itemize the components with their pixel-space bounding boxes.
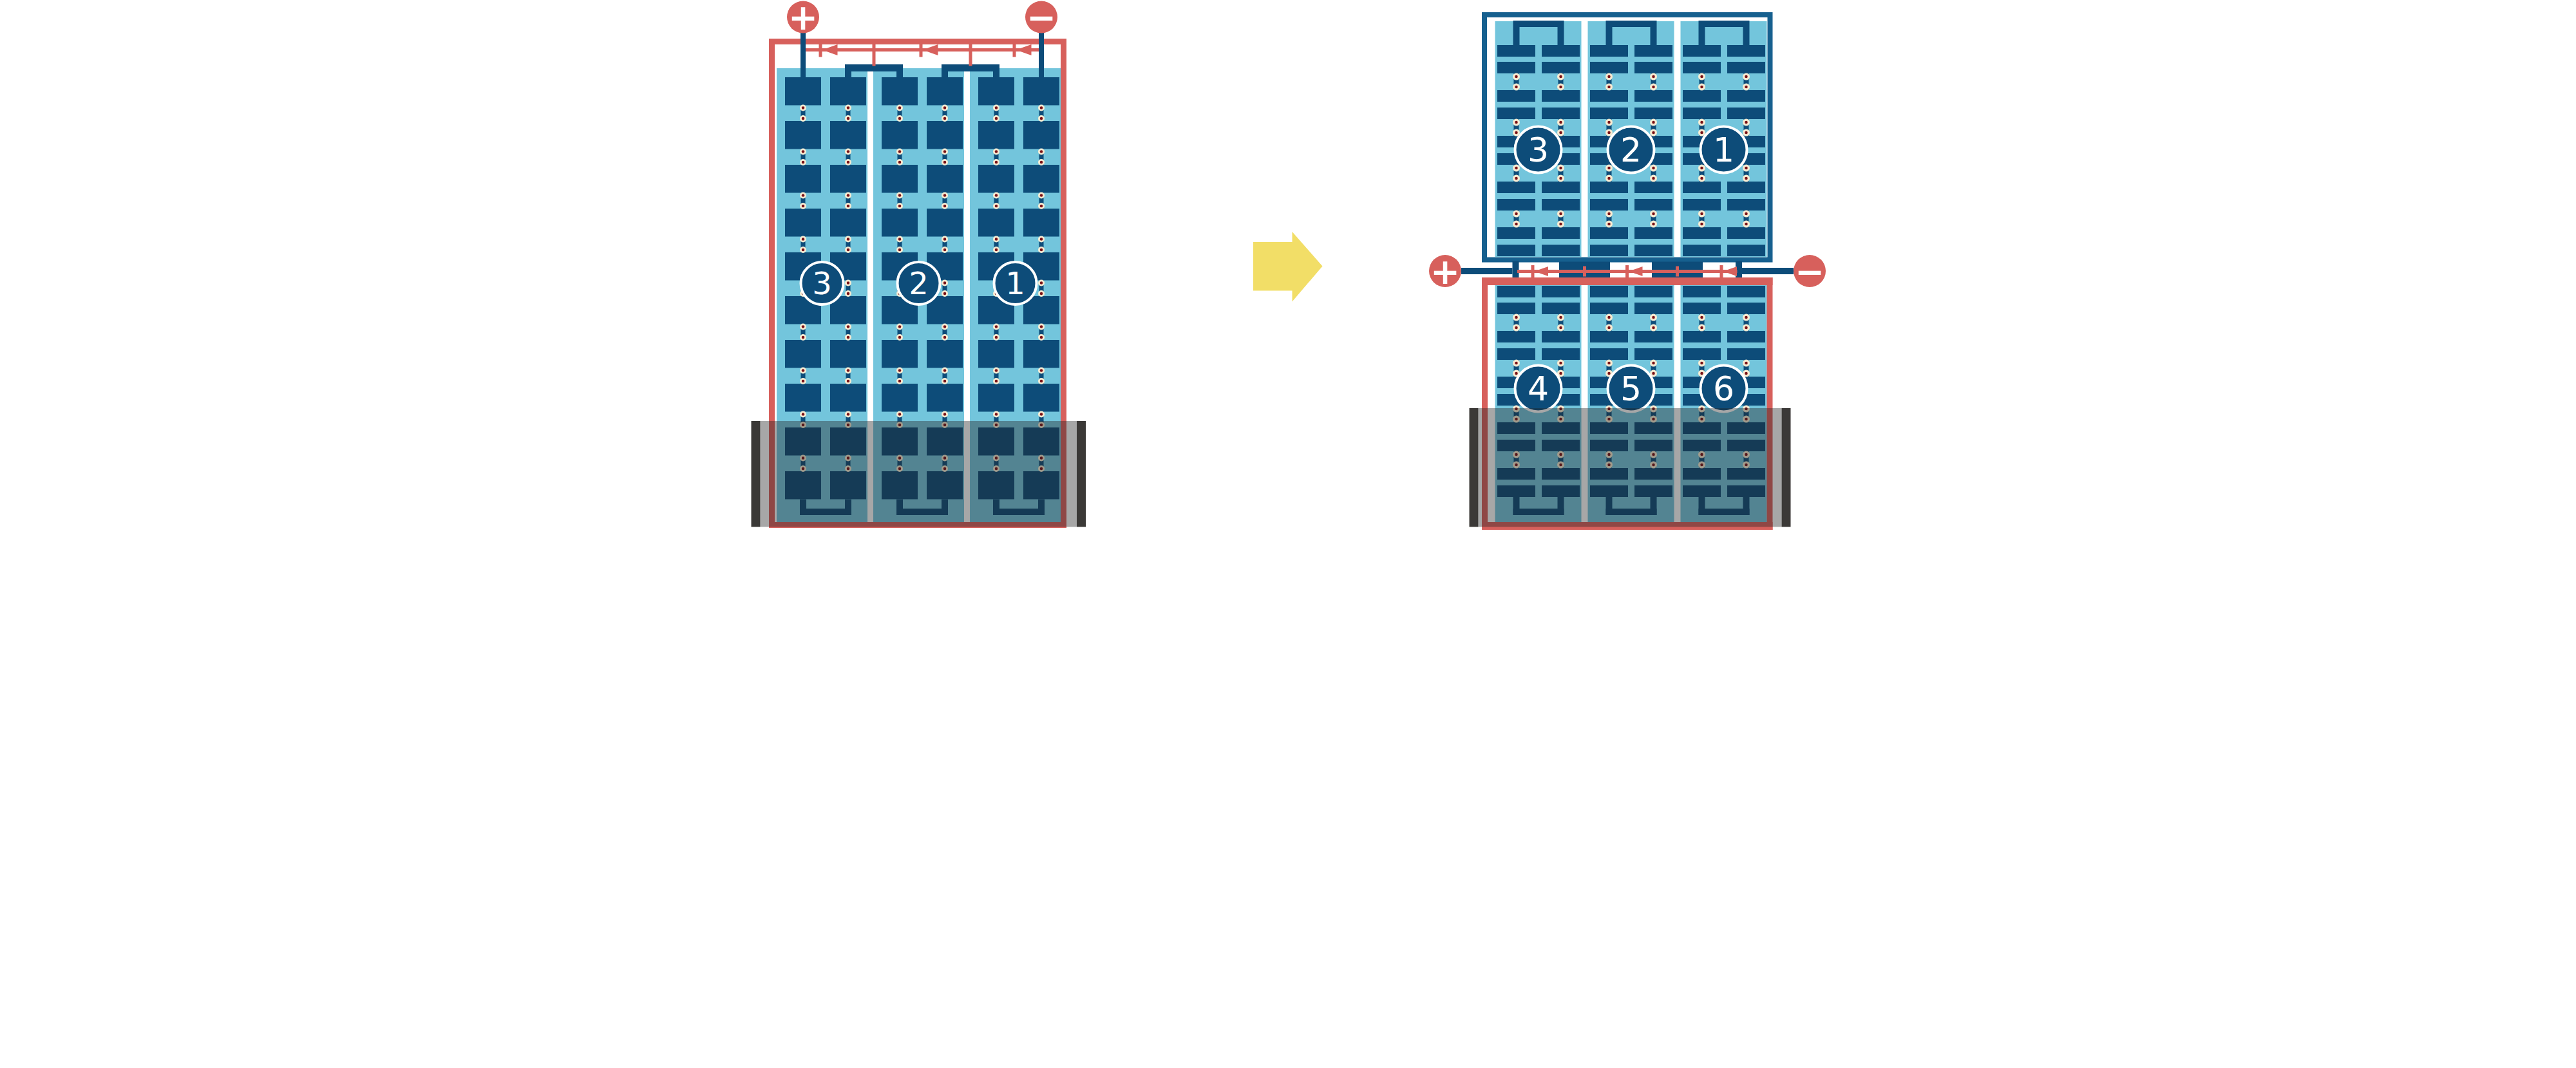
solar-cell <box>1023 121 1059 149</box>
solder-joint-core <box>1040 292 1043 295</box>
solar-cell <box>1023 165 1059 193</box>
solar-cell <box>1023 209 1059 237</box>
string-number-badge: 5 <box>1608 366 1654 412</box>
solder-joint-core <box>943 281 947 285</box>
solder-joint-core <box>1040 117 1043 120</box>
solder-joint-core <box>898 117 902 120</box>
solder-joint-core <box>1607 131 1611 135</box>
transform-arrow <box>1253 232 1323 302</box>
solder-joint-core <box>1515 131 1518 135</box>
solder-joint-core <box>1745 316 1748 319</box>
solder-joint-core <box>995 117 998 120</box>
solder-joint-core <box>995 150 998 153</box>
solder-joint-core <box>802 380 805 383</box>
solder-joint-core <box>1652 121 1655 124</box>
solar-half-cell <box>1590 62 1628 73</box>
string-number: 6 <box>1713 370 1734 408</box>
string-jumper-leg <box>896 71 903 77</box>
solder-joint-core <box>847 194 850 197</box>
solder-joint-core <box>1515 223 1518 226</box>
solar-half-cell <box>1497 303 1535 314</box>
solder-joint-core <box>847 369 850 372</box>
solder-joint-core <box>898 150 902 153</box>
solder-joint-core <box>943 106 947 109</box>
string-jumper-leg <box>942 71 948 77</box>
solar-half-cell <box>1497 227 1535 239</box>
solar-cell <box>978 209 1014 237</box>
solder-joint-core <box>1040 336 1043 339</box>
solder-joint-core <box>898 205 902 208</box>
string-number: 1 <box>1005 265 1025 301</box>
solder-joint-core <box>943 238 947 241</box>
bypass-diode-icon <box>1535 267 1549 276</box>
solder-joint-core <box>1607 316 1611 319</box>
solar-half-cell <box>1590 45 1628 57</box>
solder-joint-core <box>943 413 947 416</box>
solar-half-cell <box>1683 90 1721 102</box>
solder-joint-core <box>847 106 850 109</box>
solder-joint-core <box>943 117 947 120</box>
solar-half-cell <box>1683 227 1721 239</box>
solar-half-cell <box>1683 303 1721 314</box>
solder-joint-core <box>995 194 998 197</box>
solar-half-cell <box>1590 90 1628 102</box>
solder-joint-core <box>802 205 805 208</box>
solder-joint-core <box>1607 177 1611 180</box>
solder-joint-core <box>1700 177 1703 180</box>
solder-joint-core <box>1559 372 1562 375</box>
string-jumper-leg <box>1651 27 1657 45</box>
solar-half-cell <box>1683 182 1721 193</box>
solder-joint-core <box>995 161 998 164</box>
solar-half-cell <box>1634 227 1672 239</box>
solder-joint-core <box>1040 106 1043 109</box>
string-number-badge: 3 <box>801 262 844 304</box>
solder-joint-core <box>1700 167 1703 170</box>
string-jumper-leg <box>1558 27 1564 45</box>
solder-joint-core <box>847 161 850 164</box>
diagram-canvas: +−321 +−321456 <box>644 0 1932 534</box>
string-jumper-leg <box>1699 27 1705 45</box>
solder-joint-core <box>802 238 805 241</box>
solar-cell <box>882 209 918 237</box>
right-module-half-cell-panels: +−321456 <box>1429 15 1826 530</box>
solar-half-cell <box>1683 245 1721 256</box>
circuit-tap <box>1676 267 1679 277</box>
solar-half-cell <box>1542 90 1580 102</box>
solder-joint-core <box>802 248 805 252</box>
solder-joint-core <box>898 194 902 197</box>
solar-half-cell <box>1542 199 1580 211</box>
solar-half-cell <box>1497 90 1535 102</box>
solar-cell <box>978 77 1014 106</box>
solar-half-cell <box>1542 227 1580 239</box>
solder-joint-core <box>1745 167 1748 170</box>
solder-joint-core <box>1652 223 1655 226</box>
solder-joint-core <box>995 106 998 109</box>
solder-joint-core <box>898 248 902 252</box>
solder-joint-core <box>898 106 902 109</box>
solar-half-cell <box>1634 286 1672 297</box>
solder-joint-core <box>802 106 805 109</box>
solar-half-cell <box>1727 108 1765 119</box>
solder-joint-core <box>1745 362 1748 365</box>
solar-cell <box>927 384 963 412</box>
solar-half-cell <box>1727 348 1765 360</box>
solder-joint-core <box>943 248 947 252</box>
solder-joint-core <box>802 336 805 339</box>
solder-joint-core <box>943 325 947 328</box>
solar-half-cell <box>1727 90 1765 102</box>
solder-joint-core <box>943 336 947 339</box>
string-number-badge: 2 <box>898 262 940 304</box>
solder-joint-core <box>1700 372 1703 375</box>
solder-joint-core <box>1745 223 1748 226</box>
shade-band-cap <box>1077 421 1086 527</box>
plus-terminal-icon: + <box>787 0 819 38</box>
string-number-badge: 4 <box>1515 366 1562 412</box>
solar-half-cell <box>1542 245 1580 256</box>
solar-cell <box>1023 340 1059 368</box>
solder-joint-core <box>1652 86 1655 89</box>
string-number: 2 <box>909 265 929 301</box>
solder-joint-core <box>802 150 805 153</box>
solder-joint-core <box>1559 316 1562 319</box>
solar-half-cell <box>1497 62 1535 73</box>
circuit-tap <box>873 44 876 66</box>
string-jumper-leg <box>1743 27 1750 45</box>
string-jumper-bar <box>1606 21 1657 27</box>
solder-joint-core <box>898 380 902 383</box>
bypass-diode-icon <box>1013 43 1016 57</box>
solar-half-cell <box>1542 286 1580 297</box>
solder-joint-core <box>995 248 998 252</box>
solar-half-cell <box>1727 45 1765 57</box>
solar-cell <box>785 340 821 368</box>
solder-joint-core <box>1559 212 1562 216</box>
terminal-symbol: − <box>1795 251 1824 292</box>
solder-joint-core <box>943 205 947 208</box>
solar-cell <box>978 165 1014 193</box>
solar-half-cell <box>1497 286 1535 297</box>
solder-joint-core <box>1700 362 1703 365</box>
solder-joint-core <box>1515 167 1518 170</box>
solder-joint-core <box>1559 177 1562 180</box>
solder-joint-core <box>1515 212 1518 216</box>
solder-joint-core <box>995 413 998 416</box>
solder-joint-core <box>943 161 947 164</box>
solar-cell <box>785 77 821 106</box>
solder-joint-core <box>1652 131 1655 135</box>
solar-half-cell <box>1590 182 1628 193</box>
solder-joint-core <box>1700 121 1703 124</box>
bypass-diode-icon <box>1016 44 1032 55</box>
solar-half-cell <box>1497 108 1535 119</box>
solder-joint-core <box>1607 121 1611 124</box>
solar-half-cell <box>1727 182 1765 193</box>
terminal-bus-bar <box>1461 268 1513 274</box>
solder-joint-core <box>1652 316 1655 319</box>
minus-terminal-icon: − <box>1794 251 1826 292</box>
solder-joint-core <box>1515 86 1518 89</box>
solder-joint-core <box>1652 212 1655 216</box>
bypass-diode-icon <box>819 43 822 57</box>
solder-joint-core <box>1040 161 1043 164</box>
solar-half-cell <box>1634 90 1672 102</box>
solar-cell <box>882 340 918 368</box>
solar-half-cell <box>1727 199 1765 211</box>
solar-half-cell <box>1727 286 1765 297</box>
bypass-diode-icon <box>822 44 838 55</box>
shade-band-overlay <box>761 421 1077 527</box>
solder-joint-core <box>1559 362 1562 365</box>
solar-cell <box>978 384 1014 412</box>
solder-joint-core <box>847 325 850 328</box>
solder-joint-core <box>1040 205 1043 208</box>
plus-terminal-icon: + <box>1429 251 1461 292</box>
solder-joint-core <box>943 292 947 295</box>
string-number-badge: 6 <box>1701 366 1747 412</box>
solder-joint-core <box>1652 372 1655 375</box>
string-jumper-bar <box>1513 21 1564 27</box>
bypass-diode-icon <box>923 44 938 55</box>
solder-joint-core <box>847 281 850 285</box>
solder-joint-core <box>802 413 805 416</box>
solder-joint-core <box>1700 326 1703 330</box>
solder-joint-core <box>1607 372 1611 375</box>
solder-joint-core <box>1652 75 1655 79</box>
solder-joint-core <box>1515 177 1518 180</box>
shade-band-cap <box>1782 408 1791 527</box>
solder-joint-core <box>995 238 998 241</box>
solder-joint-core <box>1607 167 1611 170</box>
bypass-diode-icon <box>1720 265 1723 277</box>
solder-joint-core <box>1745 121 1748 124</box>
shade-band-overlay <box>1479 408 1782 527</box>
solar-cell <box>785 121 821 149</box>
solder-joint-core <box>1559 326 1562 330</box>
solar-half-cell <box>1590 199 1628 211</box>
string-jumper-leg <box>1513 27 1520 45</box>
solder-joint-core <box>995 336 998 339</box>
solar-cell <box>927 209 963 237</box>
solar-half-cell <box>1727 227 1765 239</box>
solder-joint-core <box>943 369 947 372</box>
solder-joint-core <box>1040 369 1043 372</box>
solder-joint-core <box>1700 212 1703 216</box>
solar-half-cell <box>1634 199 1672 211</box>
solder-joint-core <box>1515 372 1518 375</box>
solar-half-cell <box>1590 227 1628 239</box>
solar-half-cell <box>1634 245 1672 256</box>
solder-joint-core <box>943 194 947 197</box>
solar-cell <box>882 121 918 149</box>
solder-joint-core <box>1040 380 1043 383</box>
solar-half-cell <box>1542 331 1580 342</box>
solder-joint-core <box>847 150 850 153</box>
solar-cell <box>978 121 1014 149</box>
bypass-diode-icon <box>1625 265 1629 277</box>
solder-joint-core <box>847 413 850 416</box>
solar-half-cell <box>1683 108 1721 119</box>
solar-cell <box>785 209 821 237</box>
solder-joint-core <box>898 325 902 328</box>
solar-half-cell <box>1634 62 1672 73</box>
solder-joint-core <box>995 380 998 383</box>
solar-cell <box>830 121 866 149</box>
solder-joint-core <box>995 205 998 208</box>
solder-joint-core <box>1745 75 1748 79</box>
solar-half-cell <box>1497 45 1535 57</box>
solder-joint-core <box>1040 238 1043 241</box>
solar-half-cell <box>1590 348 1628 360</box>
solar-half-cell <box>1634 303 1672 314</box>
solar-cell <box>927 77 963 106</box>
solder-joint-core <box>1515 316 1518 319</box>
solder-joint-core <box>898 238 902 241</box>
solar-half-cell <box>1634 182 1672 193</box>
solder-joint-core <box>1515 121 1518 124</box>
left-module-full-cell-panel: +−321 <box>752 0 1086 527</box>
solder-joint-core <box>847 336 850 339</box>
solder-joint-core <box>847 205 850 208</box>
string-number: 3 <box>1528 131 1549 169</box>
solar-cell <box>927 340 963 368</box>
solder-joint-core <box>847 117 850 120</box>
bypass-diode-icon <box>920 43 923 57</box>
circuit-tap <box>969 44 972 66</box>
solder-joint-core <box>995 369 998 372</box>
solar-module-shading-diagram: +−321 +−321456 <box>644 0 1932 534</box>
string-jumper-leg <box>845 71 851 77</box>
solar-half-cell <box>1590 331 1628 342</box>
solar-cell <box>882 77 918 106</box>
solder-joint-core <box>1745 131 1748 135</box>
solder-joint-core <box>1559 167 1562 170</box>
solar-cell <box>1023 384 1059 412</box>
solder-joint-core <box>1607 75 1611 79</box>
solder-joint-core <box>1607 326 1611 330</box>
string-number-badge: 3 <box>1515 127 1562 173</box>
solar-half-cell <box>1497 331 1535 342</box>
solder-joint-core <box>1745 372 1748 375</box>
bottom-panel-frame-top <box>1482 277 1773 285</box>
solar-cell <box>882 165 918 193</box>
solar-half-cell <box>1683 348 1721 360</box>
solder-joint-core <box>847 238 850 241</box>
string-jumper-leg <box>1606 27 1613 45</box>
solder-joint-core <box>1559 223 1562 226</box>
string-number-badge: 1 <box>994 262 1037 304</box>
solder-joint-core <box>1607 86 1611 89</box>
solar-half-cell <box>1497 348 1535 360</box>
solder-joint-core <box>1040 281 1043 285</box>
solder-joint-core <box>943 380 947 383</box>
terminal-symbol: + <box>1430 251 1460 292</box>
solder-joint-core <box>1515 326 1518 330</box>
solder-joint-core <box>1559 86 1562 89</box>
solar-cell <box>785 384 821 412</box>
solar-half-cell <box>1590 286 1628 297</box>
solder-joint-core <box>1700 223 1703 226</box>
solar-cell <box>927 165 963 193</box>
solar-half-cell <box>1542 303 1580 314</box>
solder-joint-core <box>1040 150 1043 153</box>
solder-joint-core <box>1040 248 1043 252</box>
solder-joint-core <box>1607 223 1611 226</box>
solder-joint-core <box>1700 75 1703 79</box>
solder-joint-core <box>898 413 902 416</box>
solder-joint-core <box>802 369 805 372</box>
solar-half-cell <box>1497 182 1535 193</box>
string-number: 4 <box>1528 370 1549 408</box>
solar-half-cell <box>1634 108 1672 119</box>
solder-joint-core <box>1652 326 1655 330</box>
solar-cell <box>1023 77 1059 106</box>
solder-joint-core <box>847 380 850 383</box>
solder-joint-core <box>898 161 902 164</box>
solar-cell <box>882 384 918 412</box>
solar-cell <box>830 340 866 368</box>
bypass-diode-icon <box>1723 267 1738 276</box>
solder-joint-core <box>1652 362 1655 365</box>
solar-half-cell <box>1542 108 1580 119</box>
string-number: 5 <box>1620 370 1642 408</box>
circuit-tap <box>1583 267 1586 277</box>
solder-joint-core <box>802 117 805 120</box>
solder-joint-core <box>802 325 805 328</box>
solar-cell <box>830 77 866 106</box>
string-number-badge: 1 <box>1701 127 1747 173</box>
string-number-badge: 2 <box>1608 127 1654 173</box>
solder-joint-core <box>1515 362 1518 365</box>
string-number: 3 <box>812 265 832 301</box>
solar-half-cell <box>1683 331 1721 342</box>
solar-half-cell <box>1542 62 1580 73</box>
solar-cell <box>830 384 866 412</box>
solar-cell <box>978 340 1014 368</box>
solar-cell <box>830 209 866 237</box>
terminal-bus-bar <box>1742 268 1794 274</box>
solder-joint-core <box>1607 212 1611 216</box>
solder-joint-core <box>1745 86 1748 89</box>
transform-arrow-icon <box>1253 232 1323 302</box>
solar-cell <box>927 121 963 149</box>
solder-joint-core <box>1040 325 1043 328</box>
solder-joint-core <box>1652 177 1655 180</box>
solar-half-cell <box>1683 62 1721 73</box>
solder-joint-core <box>1652 167 1655 170</box>
string-jumper-bar <box>1699 21 1750 27</box>
solder-joint-core <box>898 336 902 339</box>
solar-cell <box>830 165 866 193</box>
solar-half-cell <box>1497 199 1535 211</box>
solar-half-cell <box>1683 199 1721 211</box>
bypass-diode-icon <box>1531 265 1535 277</box>
solder-joint-core <box>1745 212 1748 216</box>
solar-half-cell <box>1727 245 1765 256</box>
solder-joint-core <box>847 292 850 295</box>
terminal-symbol: + <box>788 0 818 38</box>
solder-joint-core <box>1559 75 1562 79</box>
solder-joint-core <box>1559 131 1562 135</box>
solder-joint-core <box>898 369 902 372</box>
solar-half-cell <box>1634 348 1672 360</box>
solar-half-cell <box>1542 45 1580 57</box>
solar-half-cell <box>1497 245 1535 256</box>
solar-half-cell <box>1542 348 1580 360</box>
solder-joint-core <box>1515 75 1518 79</box>
